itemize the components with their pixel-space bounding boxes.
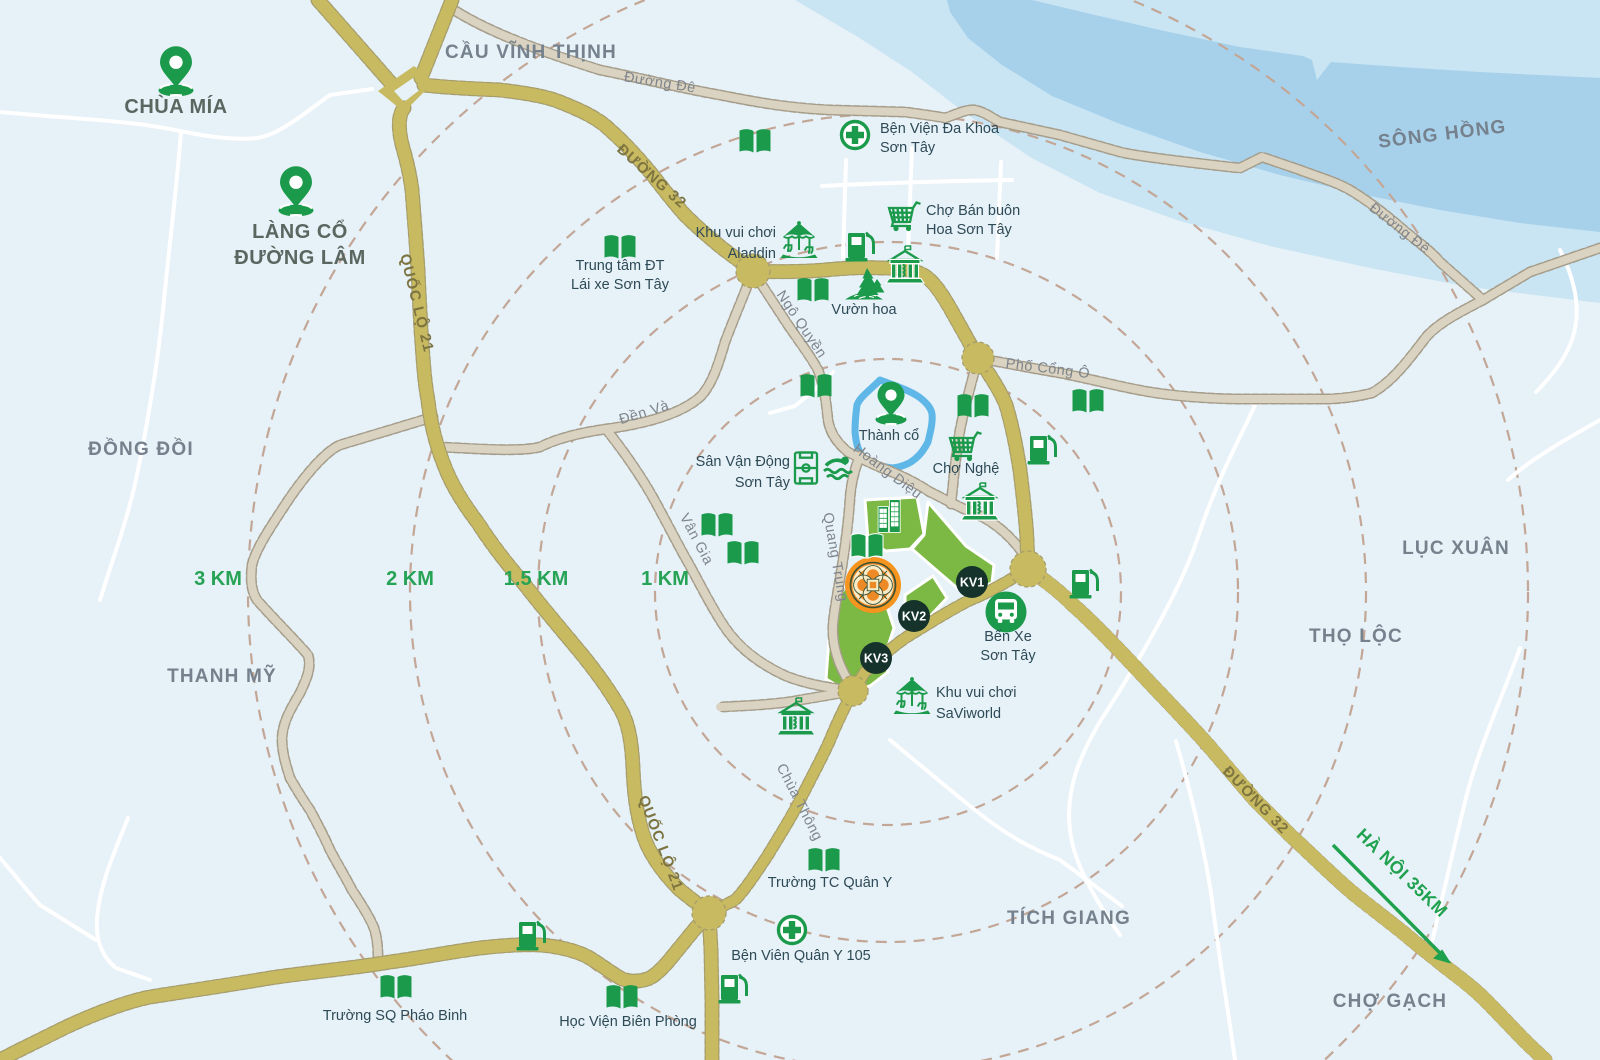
svg-text:Sơn Tây: Sơn Tây: [980, 648, 1036, 664]
svg-text:Trường SQ Pháo Binh: Trường SQ Pháo Binh: [323, 1008, 467, 1024]
svg-text:ĐỒNG ĐỒI: ĐỒNG ĐỒI: [88, 438, 194, 460]
svg-text:CHÙA MÍA: CHÙA MÍA: [124, 94, 227, 118]
svg-text:Khu vui chơi: Khu vui chơi: [696, 225, 776, 241]
svg-text:Thành cổ: Thành cổ: [859, 428, 919, 444]
svg-text:Sân Vận Động: Sân Vận Động: [696, 454, 790, 470]
svg-text:Sơn Tây: Sơn Tây: [880, 140, 936, 156]
svg-text:THỌ LỘC: THỌ LỘC: [1309, 625, 1403, 647]
svg-text:ĐƯỜNG LÂM: ĐƯỜNG LÂM: [234, 245, 365, 269]
svg-text:Bện Viện Đa Khoa: Bện Viện Đa Khoa: [880, 121, 1000, 137]
svg-text:KV1: KV1: [960, 576, 984, 590]
svg-text:1 KM: 1 KM: [641, 568, 689, 590]
svg-text:LỤC XUÂN: LỤC XUÂN: [1402, 537, 1510, 559]
svg-text:Khu vui chơi: Khu vui chơi: [936, 685, 1016, 701]
svg-text:Bện Viên Quân Y 105: Bện Viên Quân Y 105: [731, 948, 871, 964]
svg-text:Vườn hoa: Vườn hoa: [831, 302, 897, 318]
svg-text:Trung tâm ĐT: Trung tâm ĐT: [576, 258, 665, 274]
svg-text:THANH MỸ: THANH MỸ: [167, 665, 277, 687]
svg-text:2 KM: 2 KM: [386, 568, 434, 590]
svg-text:Học Viện Biên Phòng: Học Viện Biên Phòng: [559, 1014, 697, 1030]
svg-text:Lái xe Sơn Tây: Lái xe Sơn Tây: [571, 277, 670, 293]
svg-text:LÀNG CỔ: LÀNG CỔ: [252, 219, 348, 243]
svg-text:Hoa Sơn Tây: Hoa Sơn Tây: [926, 222, 1013, 238]
svg-text:Sơn Tây: Sơn Tây: [735, 475, 791, 491]
svg-text:CẦU VĨNH THỊNH: CẦU VĨNH THỊNH: [445, 41, 617, 63]
svg-text:1.5 KM: 1.5 KM: [504, 568, 568, 590]
svg-text:KV3: KV3: [864, 652, 888, 666]
svg-text:TÍCH GIANG: TÍCH GIANG: [1007, 907, 1131, 929]
svg-text:Bến Xe: Bến Xe: [984, 629, 1032, 645]
svg-text:Aladdin: Aladdin: [728, 246, 776, 262]
svg-text:Trường TC Quân Y: Trường TC Quân Y: [768, 875, 893, 891]
svg-text:SaViworld: SaViworld: [936, 706, 1001, 722]
svg-text:CHỢ GẠCH: CHỢ GẠCH: [1333, 991, 1447, 1012]
svg-text:3 KM: 3 KM: [194, 568, 242, 590]
svg-text:KV2: KV2: [902, 610, 926, 624]
svg-text:Chợ Bán buôn: Chợ Bán buôn: [926, 203, 1020, 219]
svg-text:Chợ Nghệ: Chợ Nghệ: [933, 461, 1000, 477]
